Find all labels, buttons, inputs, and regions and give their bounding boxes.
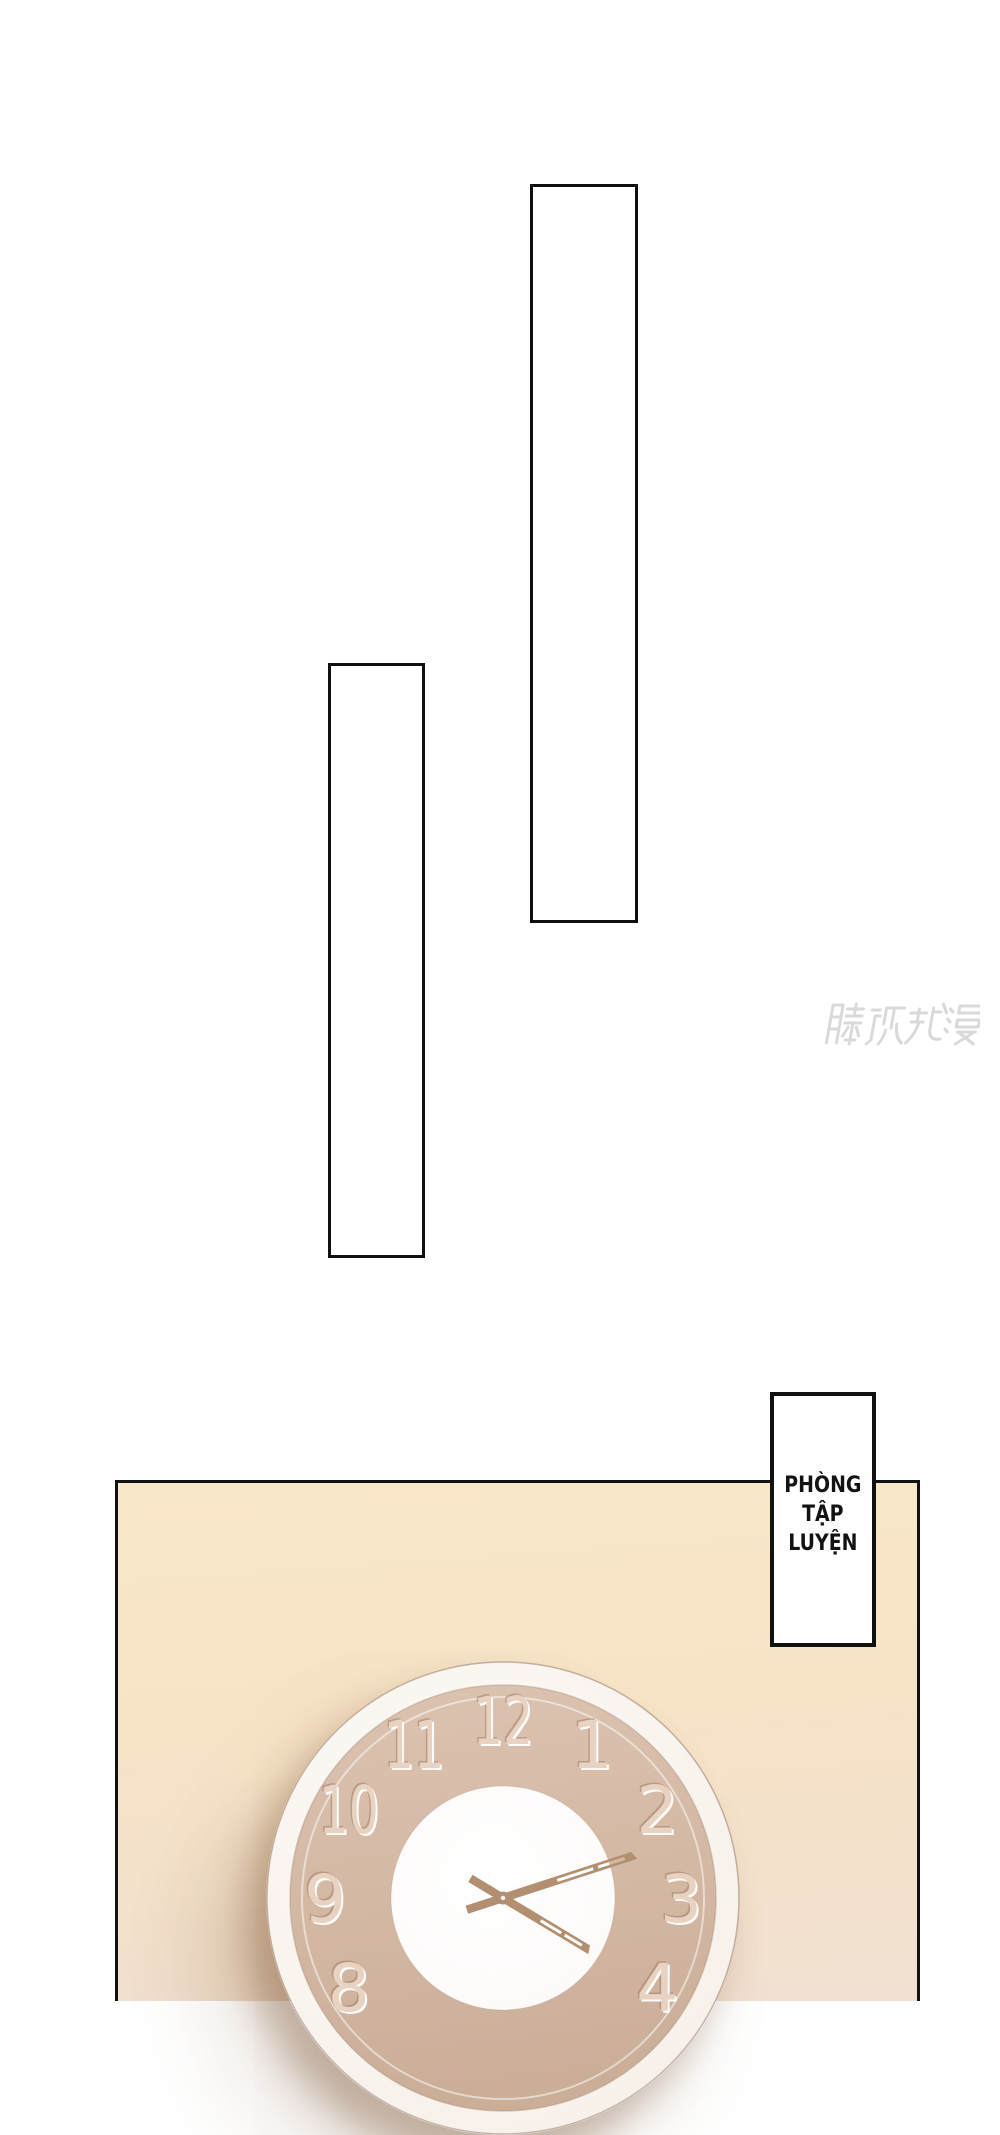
tencent-comics-watermark: [822, 1000, 980, 1048]
empty-caption-panel-right: [530, 184, 638, 923]
svg-text:12: 12: [473, 1683, 533, 1760]
watermark-glyph-3: [905, 1004, 948, 1043]
svg-text:8: 8: [328, 1950, 370, 2027]
watermark-glyphs: [822, 1000, 980, 1048]
practice-room-sign: PHÒNG TẬP LUYỆN: [770, 1392, 876, 1647]
comic-page: { "comic": { "watermark": { "text": "腾讯动…: [0, 0, 1000, 2000]
watermark-glyph-1: [826, 1004, 864, 1044]
sign-line-2: TẬP: [784, 1500, 861, 1529]
clock-hub-pin: [501, 1896, 505, 1900]
sign-line-1: PHÒNG: [784, 1471, 861, 1500]
svg-text:3: 3: [660, 1861, 702, 1938]
svg-text:4: 4: [636, 1950, 678, 2027]
wall-clock: 121234891011121234891011121234891011: [266, 1661, 740, 2135]
svg-text:11: 11: [384, 1707, 444, 1784]
svg-text:10: 10: [319, 1772, 379, 1849]
empty-caption-panel-left: [328, 663, 425, 1258]
svg-text:9: 9: [304, 1861, 346, 1938]
svg-text:2: 2: [636, 1772, 678, 1849]
sign-line-3: LUYỆN: [784, 1529, 861, 1558]
clock-svg: 121234891011121234891011121234891011: [266, 1661, 740, 2135]
watermark-glyph-2: [866, 1008, 907, 1044]
svg-text:1: 1: [571, 1707, 613, 1784]
practice-room-sign-text: PHÒNG TẬP LUYỆN: [784, 1471, 861, 1558]
